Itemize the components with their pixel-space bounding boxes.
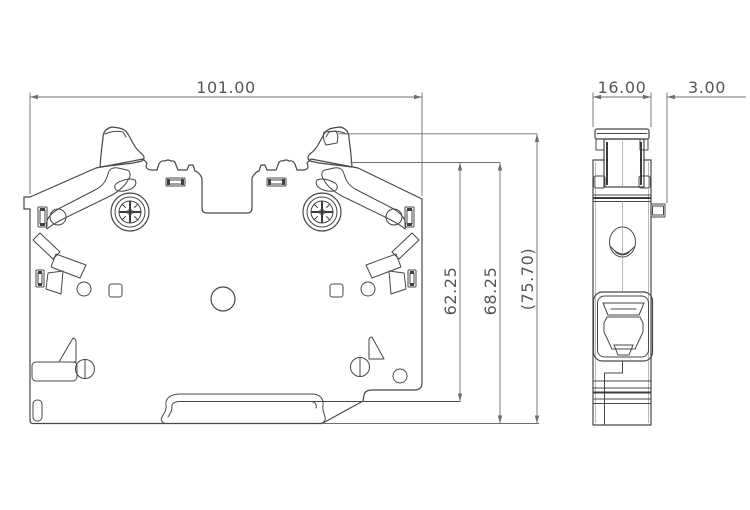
vent-quad-c — [46, 271, 63, 294]
rail-hook-left — [161, 394, 180, 424]
drawing-sheet: 101.00 16.00 3.00 62.25 — [0, 0, 750, 510]
din-rail-seat — [180, 394, 460, 402]
square-hole — [109, 284, 122, 297]
wing-bean — [115, 179, 136, 191]
front-outline — [24, 159, 422, 424]
foot-triangle-left — [59, 338, 76, 362]
dim-height-mid: 68.25 — [481, 163, 502, 424]
dim-front-width: 101.00 — [30, 78, 422, 196]
lever-body — [604, 139, 644, 187]
edge-clip-mid — [36, 270, 44, 287]
vent-quad-b — [51, 254, 86, 278]
mounting-slot — [33, 400, 42, 421]
front-details-right — [267, 127, 419, 297]
fuse-lever-notch-right — [323, 131, 337, 145]
dim-side-protrusion-label: 3.00 — [688, 78, 726, 97]
fuse-lever-fold-line — [105, 131, 126, 137]
foot-hole-right — [393, 369, 407, 383]
lever-body-edges — [607, 142, 641, 185]
cad-drawing: 101.00 16.00 3.00 62.25 — [0, 0, 750, 510]
round-port — [50, 209, 66, 225]
dim-height-inner-label: 62.25 — [441, 267, 460, 316]
extension-lines-top — [338, 134, 537, 163]
dim-height-mid-label: 68.25 — [481, 267, 500, 316]
dim-height-inner: 62.25 — [441, 163, 462, 402]
side-latch — [594, 292, 653, 361]
dim-side-width: 16.00 — [593, 78, 651, 127]
front-view — [24, 127, 460, 424]
center-hole — [211, 287, 235, 311]
dim-height-overall: (75.70) — [518, 134, 539, 424]
foot-screw-right — [351, 358, 370, 377]
rail-hook-right — [310, 394, 325, 424]
dim-side-protrusion: 3.00 — [667, 78, 746, 203]
dim-front-width-label: 101.00 — [196, 78, 256, 97]
top-clip — [166, 178, 185, 186]
terminal-screw — [111, 193, 149, 231]
foot-triangle-right — [369, 337, 384, 359]
foot-bar-left — [32, 362, 77, 381]
dim-side-width-label: 16.00 — [598, 78, 647, 97]
lever-cap-tab-left — [596, 139, 604, 150]
dim-height-overall-label: (75.70) — [518, 248, 537, 311]
edge-clip-upper — [38, 207, 47, 227]
side-protrusion-inner — [653, 206, 664, 215]
foot-screw-left — [76, 360, 95, 379]
side-view — [593, 129, 665, 425]
front-details-left — [33, 127, 185, 297]
small-hole — [77, 282, 91, 296]
dimensions: 101.00 16.00 3.00 62.25 — [30, 78, 746, 424]
